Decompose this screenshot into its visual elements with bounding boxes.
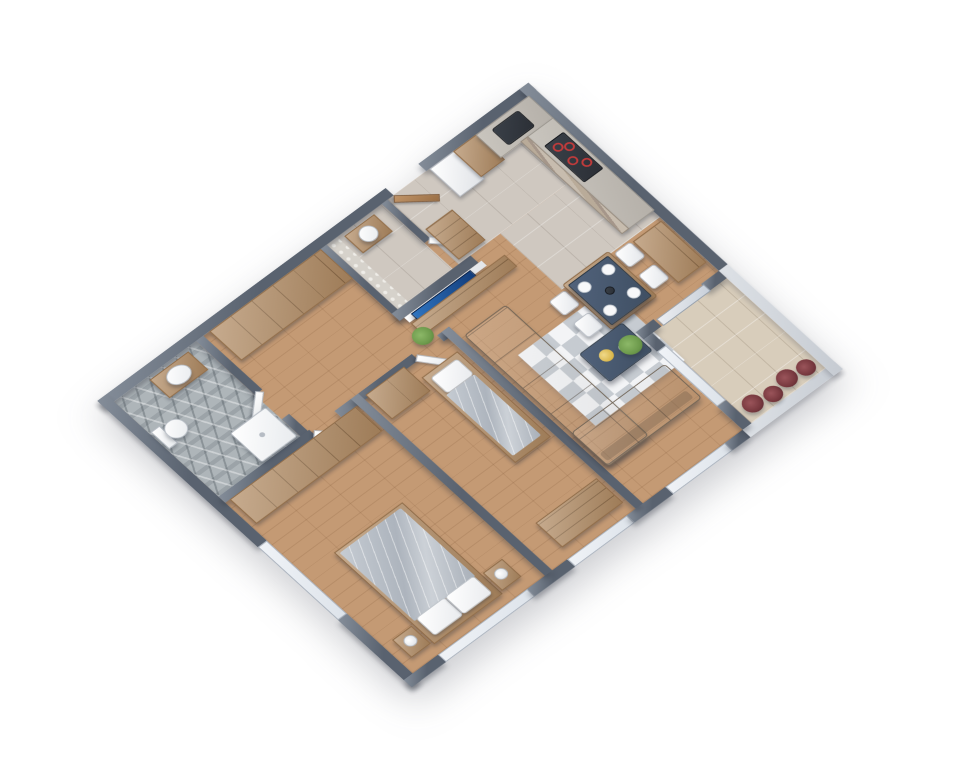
render-canvas bbox=[0, 0, 960, 780]
apartment-floor-plan bbox=[97, 83, 843, 688]
entry-door-leaf bbox=[394, 194, 440, 203]
